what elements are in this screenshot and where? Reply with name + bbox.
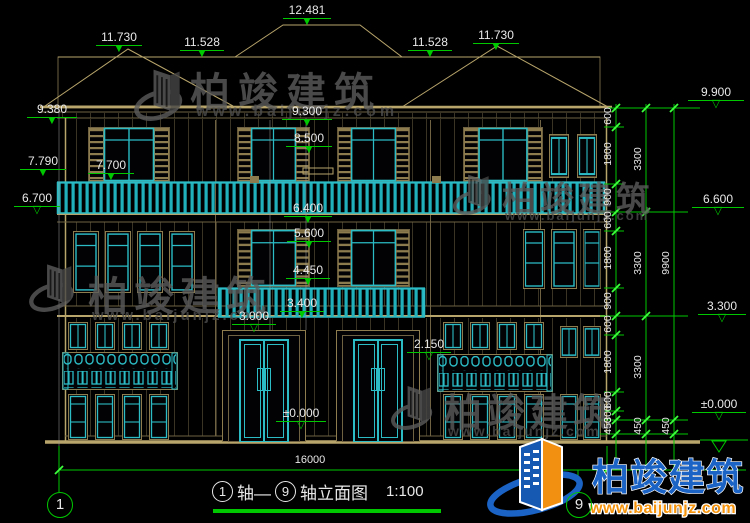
dim-label: 3300 <box>632 345 644 389</box>
elevation-marker: 11.528 <box>180 35 224 51</box>
elevation-marker: 11.730 <box>96 30 142 46</box>
elevation-marker: 7.790 <box>20 154 66 170</box>
dim-label: 9900 <box>660 241 672 285</box>
elevation-marker: 9.380 <box>27 102 77 118</box>
elevation-marker: 5.600 <box>287 226 331 242</box>
elevation-marker: 6.700 <box>14 191 60 207</box>
elevation-marker: 2.150 <box>407 337 451 353</box>
elevation-marker: 7.700 <box>88 158 134 174</box>
elevation-marker: 3.400 <box>280 296 324 312</box>
elevation-marker: 12.481 <box>283 3 331 19</box>
dim-label: 3300 <box>632 241 644 285</box>
elevation-marker: 6.600 <box>692 192 744 208</box>
dim-label: 450 <box>632 404 644 448</box>
elevation-marker: 6.400 <box>284 201 332 217</box>
title-text: 轴— <box>237 479 271 504</box>
elevation-marker: 3.000 <box>232 309 276 325</box>
elevation-marker: 8.500 <box>286 131 332 147</box>
drawing-title: 1 轴— 9 轴立面图 1:100 <box>212 479 424 504</box>
elevation-marker: ±0.000 <box>692 397 746 413</box>
dim-label: 1800 <box>602 132 614 176</box>
dim-total-width: 16000 <box>280 454 340 466</box>
logo-url: www.baijunjz.com <box>589 500 736 517</box>
axis-bubble-1: 1 <box>47 492 73 518</box>
logo-name: 柏竣建筑 <box>592 456 744 498</box>
watermark-url: www.baijunjz.com <box>448 423 601 439</box>
brand-logo: 柏竣建筑 www.baijunjz.com <box>486 439 744 521</box>
elevation-marker: 11.528 <box>408 35 452 51</box>
dim-label: 3300 <box>632 137 644 181</box>
elevation-marker: 9.300 <box>282 104 332 120</box>
elevation-marker: ±0.000 <box>276 406 326 422</box>
title-axis-start-bubble: 1 <box>212 481 233 502</box>
elevation-marker: 4.450 <box>286 263 330 279</box>
title-text: 轴立面图 <box>300 479 368 504</box>
watermark-url: www.baijunjz.com <box>505 208 649 223</box>
elevation-marker: 3.300 <box>698 299 746 315</box>
dim-label: 450 <box>602 404 614 448</box>
cad-elevation-canvas: 柏竣建筑 www.baijunjz.com 柏竣建筑 www.baijunjz.… <box>0 0 750 523</box>
elevation-marker: 9.900 <box>688 85 744 101</box>
dim-label: 1800 <box>602 236 614 280</box>
axis-bubble-9: 9 <box>566 492 592 518</box>
title-scale: 1:100 <box>386 483 424 500</box>
title-underline <box>213 509 441 513</box>
dim-label: 450 <box>660 404 672 448</box>
elevation-marker: 11.730 <box>473 28 519 44</box>
title-axis-end-bubble: 9 <box>275 481 296 502</box>
